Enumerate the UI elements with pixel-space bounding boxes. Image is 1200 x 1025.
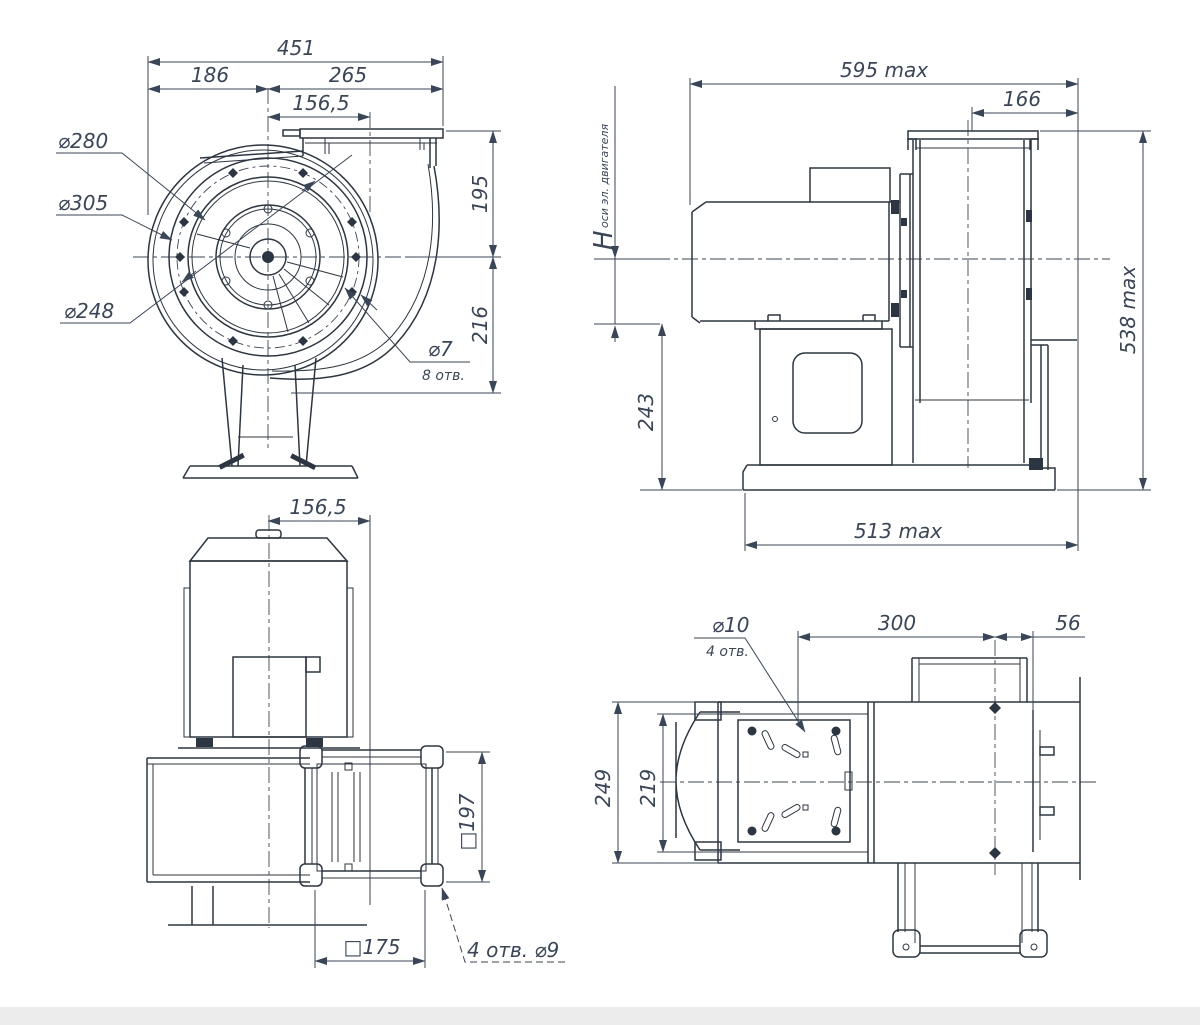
front-view: 451 186 265 156,5 195 216 ⌀280 ⌀305 ⌀248… [56, 36, 501, 478]
dim-265: 265 [329, 63, 367, 87]
motor-side [692, 168, 900, 329]
page-bottom-strip [0, 1007, 1200, 1025]
dim-451: 451 [277, 36, 315, 60]
shaft-center [262, 251, 274, 263]
top-dimensions: 300 56 249 219 ⌀10 4 отв. [591, 611, 1085, 863]
drawing-canvas: 451 186 265 156,5 195 216 ⌀280 ⌀305 ⌀248… [0, 0, 1200, 1025]
inlet-collar-side [908, 131, 1038, 139]
drawing-sheet: 451 186 265 156,5 195 216 ⌀280 ⌀305 ⌀248… [0, 0, 1200, 1025]
dim-175: □175 [343, 935, 400, 959]
dim-513max: 513 max [854, 519, 942, 543]
side-base [743, 465, 1055, 490]
front-dimensions: 451 186 265 156,5 195 216 ⌀280 ⌀305 ⌀248… [56, 36, 501, 393]
svg-text:H: H [589, 230, 619, 250]
housing-side [891, 131, 1077, 470]
dim-595max: 595 max [840, 58, 928, 82]
side-view: 595 max 166 H оси эл. двигателя 243 538 … [589, 58, 1151, 551]
dim-243: 243 [634, 393, 658, 431]
motor-end-top [676, 702, 740, 860]
outlet-duct-top [893, 863, 1047, 957]
dim-195: 195 [468, 175, 492, 213]
outlet-flange-plan [300, 746, 443, 886]
motor-foot-plate [755, 321, 882, 329]
dim-4-holes-9: 4 отв. ⌀9 [467, 938, 559, 962]
dim-dia248: ⌀248 [64, 299, 114, 323]
dim-216: 216 [468, 306, 492, 344]
plan-dimensions: 156,5 □197 □175 4 отв. ⌀9 [268, 495, 565, 968]
casing-plan [147, 758, 310, 882]
dim-219: 219 [636, 769, 660, 807]
housing-front-wall-top [868, 702, 874, 863]
dim-dia10: ⌀10 [712, 613, 750, 637]
mounting-plate [738, 720, 852, 842]
dim-8-holes: 8 отв. [422, 368, 465, 384]
side-dimensions: 595 max 166 H оси эл. двигателя 243 538 … [589, 58, 1151, 551]
dim-166: 166 [1003, 87, 1041, 111]
dim-4-holes: 4 отв. [706, 644, 749, 660]
dim-197: □197 [455, 793, 479, 850]
base-plate-top [718, 677, 1080, 880]
inlet-collar-top [912, 658, 1027, 702]
housing-right-top [1033, 710, 1054, 852]
pedestal [760, 329, 892, 465]
dim-156-front: 156,5 [292, 91, 349, 115]
junction-box-plan [233, 657, 306, 737]
dim-56: 56 [1055, 611, 1080, 635]
dim-186: 186 [191, 63, 229, 87]
plan-view: 156,5 □197 □175 4 отв. ⌀9 [147, 495, 565, 968]
dim-dia305: ⌀305 [58, 191, 108, 215]
dim-156-plan: 156,5 [289, 495, 346, 519]
dim-dia7: ⌀7 [428, 337, 453, 361]
dim-dia280: ⌀280 [58, 129, 108, 153]
junction-box [810, 168, 890, 202]
plan-legs [168, 886, 367, 925]
top-view: 300 56 249 219 ⌀10 4 отв. [591, 611, 1100, 957]
dim-538max: 538 max [1116, 266, 1140, 354]
dim-249: 249 [591, 769, 615, 807]
dim-300: 300 [878, 611, 916, 635]
svg-text:оси эл. двигателя: оси эл. двигателя [598, 124, 611, 228]
